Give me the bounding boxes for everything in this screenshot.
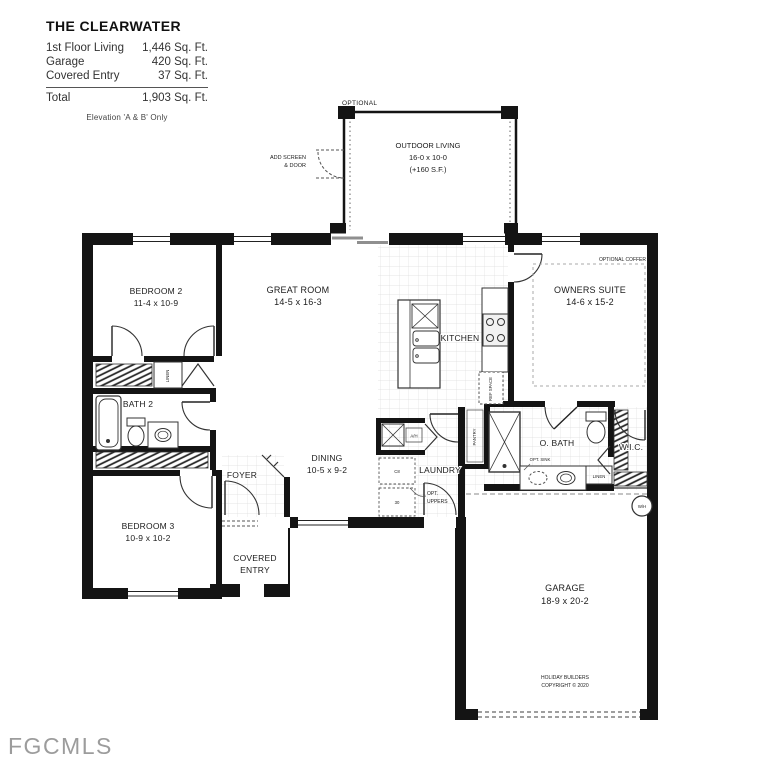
dims-owners-suite: 14-6 x 15-2 <box>566 297 614 307</box>
linen-label-obath: LINEN <box>593 474 606 479</box>
dims-bedroom3: 10-9 x 10-2 <box>125 533 170 543</box>
toilet-fixture <box>127 418 145 446</box>
dims-great-room: 14-5 x 16-3 <box>274 297 322 307</box>
room-label-garage: GARAGE <box>545 583 585 593</box>
room-label-bedroom2: BEDROOM 2 <box>130 286 183 296</box>
dishwasher-icon <box>412 304 438 328</box>
screen-door-swing <box>316 150 344 178</box>
window <box>463 234 505 245</box>
window <box>234 234 271 245</box>
window <box>133 234 170 245</box>
watermark: FGCMLS <box>8 733 113 760</box>
optional-label: OPTIONAL <box>342 100 377 107</box>
cabinet-label-1: C8 <box>394 469 400 474</box>
bathtub-fixture <box>96 396 121 450</box>
linen-label-hall: LINEN <box>165 370 170 383</box>
room-label-laundry: LAUNDRY <box>419 465 461 475</box>
room-label-outdoor-living: OUTDOOR LIVING <box>395 141 460 150</box>
opt-uppers-label-1: OPT. <box>427 491 438 497</box>
dims-outdoor-living: 16-0 x 10-0 <box>409 153 447 162</box>
sliding-glass-door <box>331 234 389 245</box>
kitchen-island <box>398 300 440 388</box>
room-label-obath: O. BATH <box>540 438 575 448</box>
air-handler-label: A/H <box>410 434 417 439</box>
add-screen-label-1: ADD SCREEN <box>270 155 306 161</box>
optional-sink-icon <box>529 472 547 485</box>
room-label-foyer: FOYER <box>227 470 257 480</box>
ref-space-label: REF SPACE <box>488 377 493 401</box>
dims-bedroom2: 11-4 x 10-9 <box>134 298 179 308</box>
vanity-sink-fixture <box>148 422 178 448</box>
dims-dining: 10-5 x 9-2 <box>307 465 347 475</box>
window <box>542 234 580 245</box>
water-heater-label: W/H <box>638 504 646 509</box>
window <box>128 589 178 599</box>
shower-fixture <box>489 412 520 472</box>
room-label-owners-suite: OWNERS SUITE <box>554 285 626 295</box>
optional-coffer-outline <box>533 264 645 386</box>
room-label-bath2: BATH 2 <box>123 399 153 409</box>
opt-sink-label: OPT. SINK <box>530 457 551 462</box>
builder-copyright-1: HOLIDAY BUILDERS <box>541 675 590 681</box>
obath-toilet-fixture <box>586 412 606 443</box>
garage-door-opening <box>478 712 640 717</box>
cabinet-label-2: 30 <box>395 500 400 505</box>
opt-uppers-label-2: UPPERS <box>427 499 448 505</box>
room-label-covered-entry-2: ENTRY <box>240 565 270 575</box>
floor-plan-drawing: OPTIONAL OUTDOOR LIVING 16-0 x 10-0 (+16… <box>0 0 768 768</box>
room-label-kitchen: KITCHEN <box>441 333 480 343</box>
room-label-covered-entry-1: COVERED <box>233 553 276 563</box>
optional-coffer-label: OPTIONAL COFFER <box>599 257 646 263</box>
builder-copyright-2: COPYRIGHT © 2020 <box>541 682 588 689</box>
window <box>298 518 348 528</box>
floor-plan-page: THE CLEARWATER 1st Floor Living 1,446 Sq… <box>0 0 768 768</box>
room-label-bedroom3: BEDROOM 3 <box>122 521 175 531</box>
room-label-wic: W.I.C. <box>619 442 643 452</box>
extra-outdoor-living: (+160 S.F.) <box>410 165 447 174</box>
dims-garage: 18-9 x 20-2 <box>541 596 589 606</box>
obath-vanity <box>520 466 586 490</box>
room-label-dining: DINING <box>312 453 343 463</box>
add-screen-label-2: & DOOR <box>284 163 306 169</box>
room-label-great-room: GREAT ROOM <box>267 285 330 295</box>
range-fixture <box>483 314 508 346</box>
pantry-label: PANTRY <box>472 428 477 445</box>
